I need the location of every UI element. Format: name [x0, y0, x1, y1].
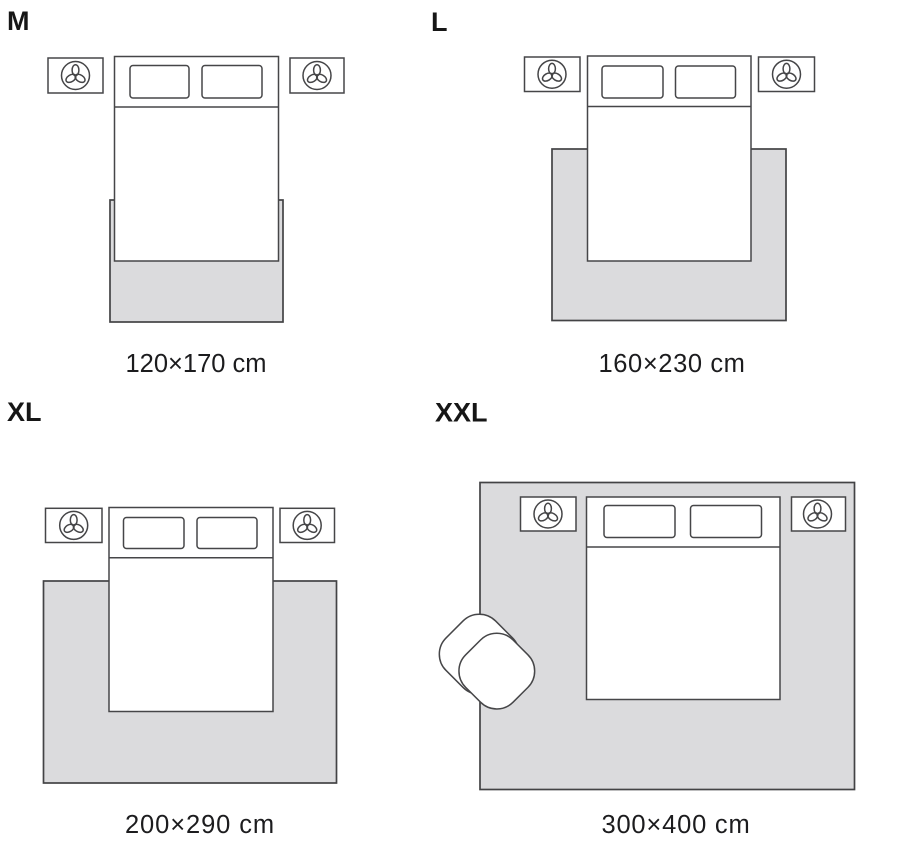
svg-text:M: M [7, 6, 30, 36]
svg-text:L: L [431, 7, 448, 37]
svg-text:160×230 cm: 160×230 cm [598, 350, 745, 378]
svg-text:200×290 cm: 200×290 cm [125, 811, 275, 839]
svg-text:300×400 cm: 300×400 cm [601, 811, 750, 839]
svg-text:XXL: XXL [435, 398, 488, 428]
svg-text:XL: XL [7, 397, 42, 427]
svg-text:120×170 cm: 120×170 cm [125, 350, 266, 378]
